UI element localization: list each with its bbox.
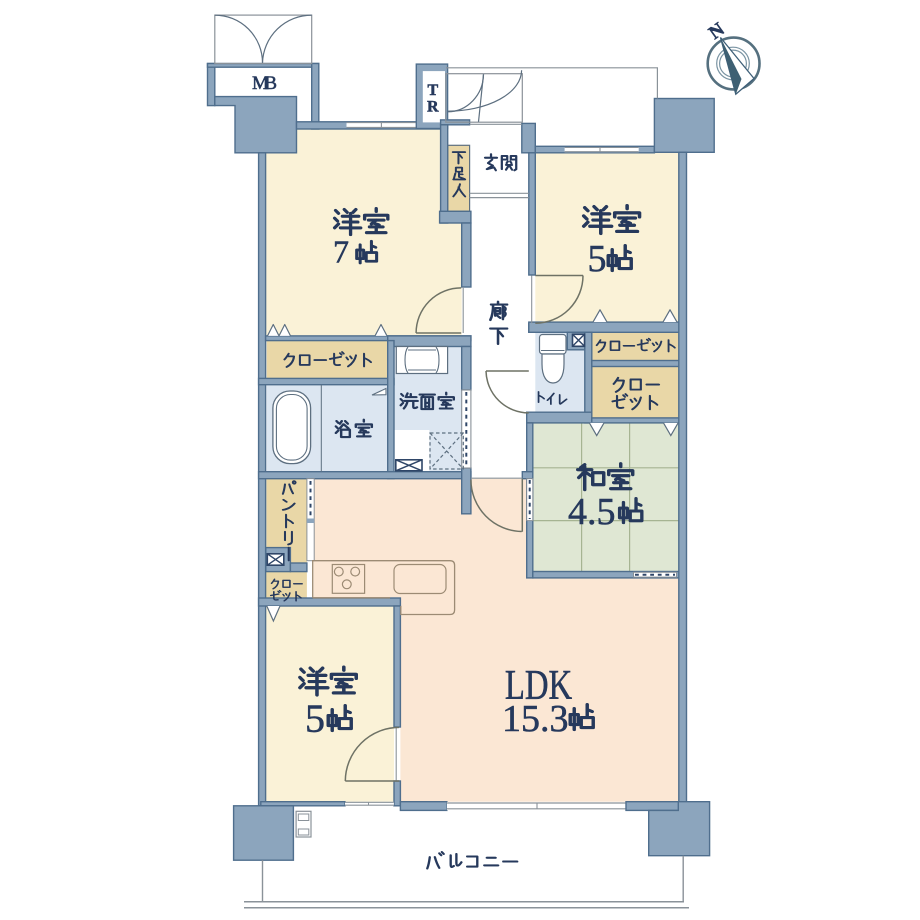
svg-text:4.5: 4.5	[568, 491, 616, 533]
svg-text:15.3: 15.3	[502, 698, 569, 740]
svg-text:7: 7	[333, 234, 349, 270]
svg-text:5: 5	[305, 696, 325, 741]
svg-text:5: 5	[588, 238, 607, 280]
svg-text:MB: MB	[252, 73, 277, 94]
svg-text:R: R	[427, 99, 439, 116]
svg-text:T: T	[427, 82, 438, 99]
